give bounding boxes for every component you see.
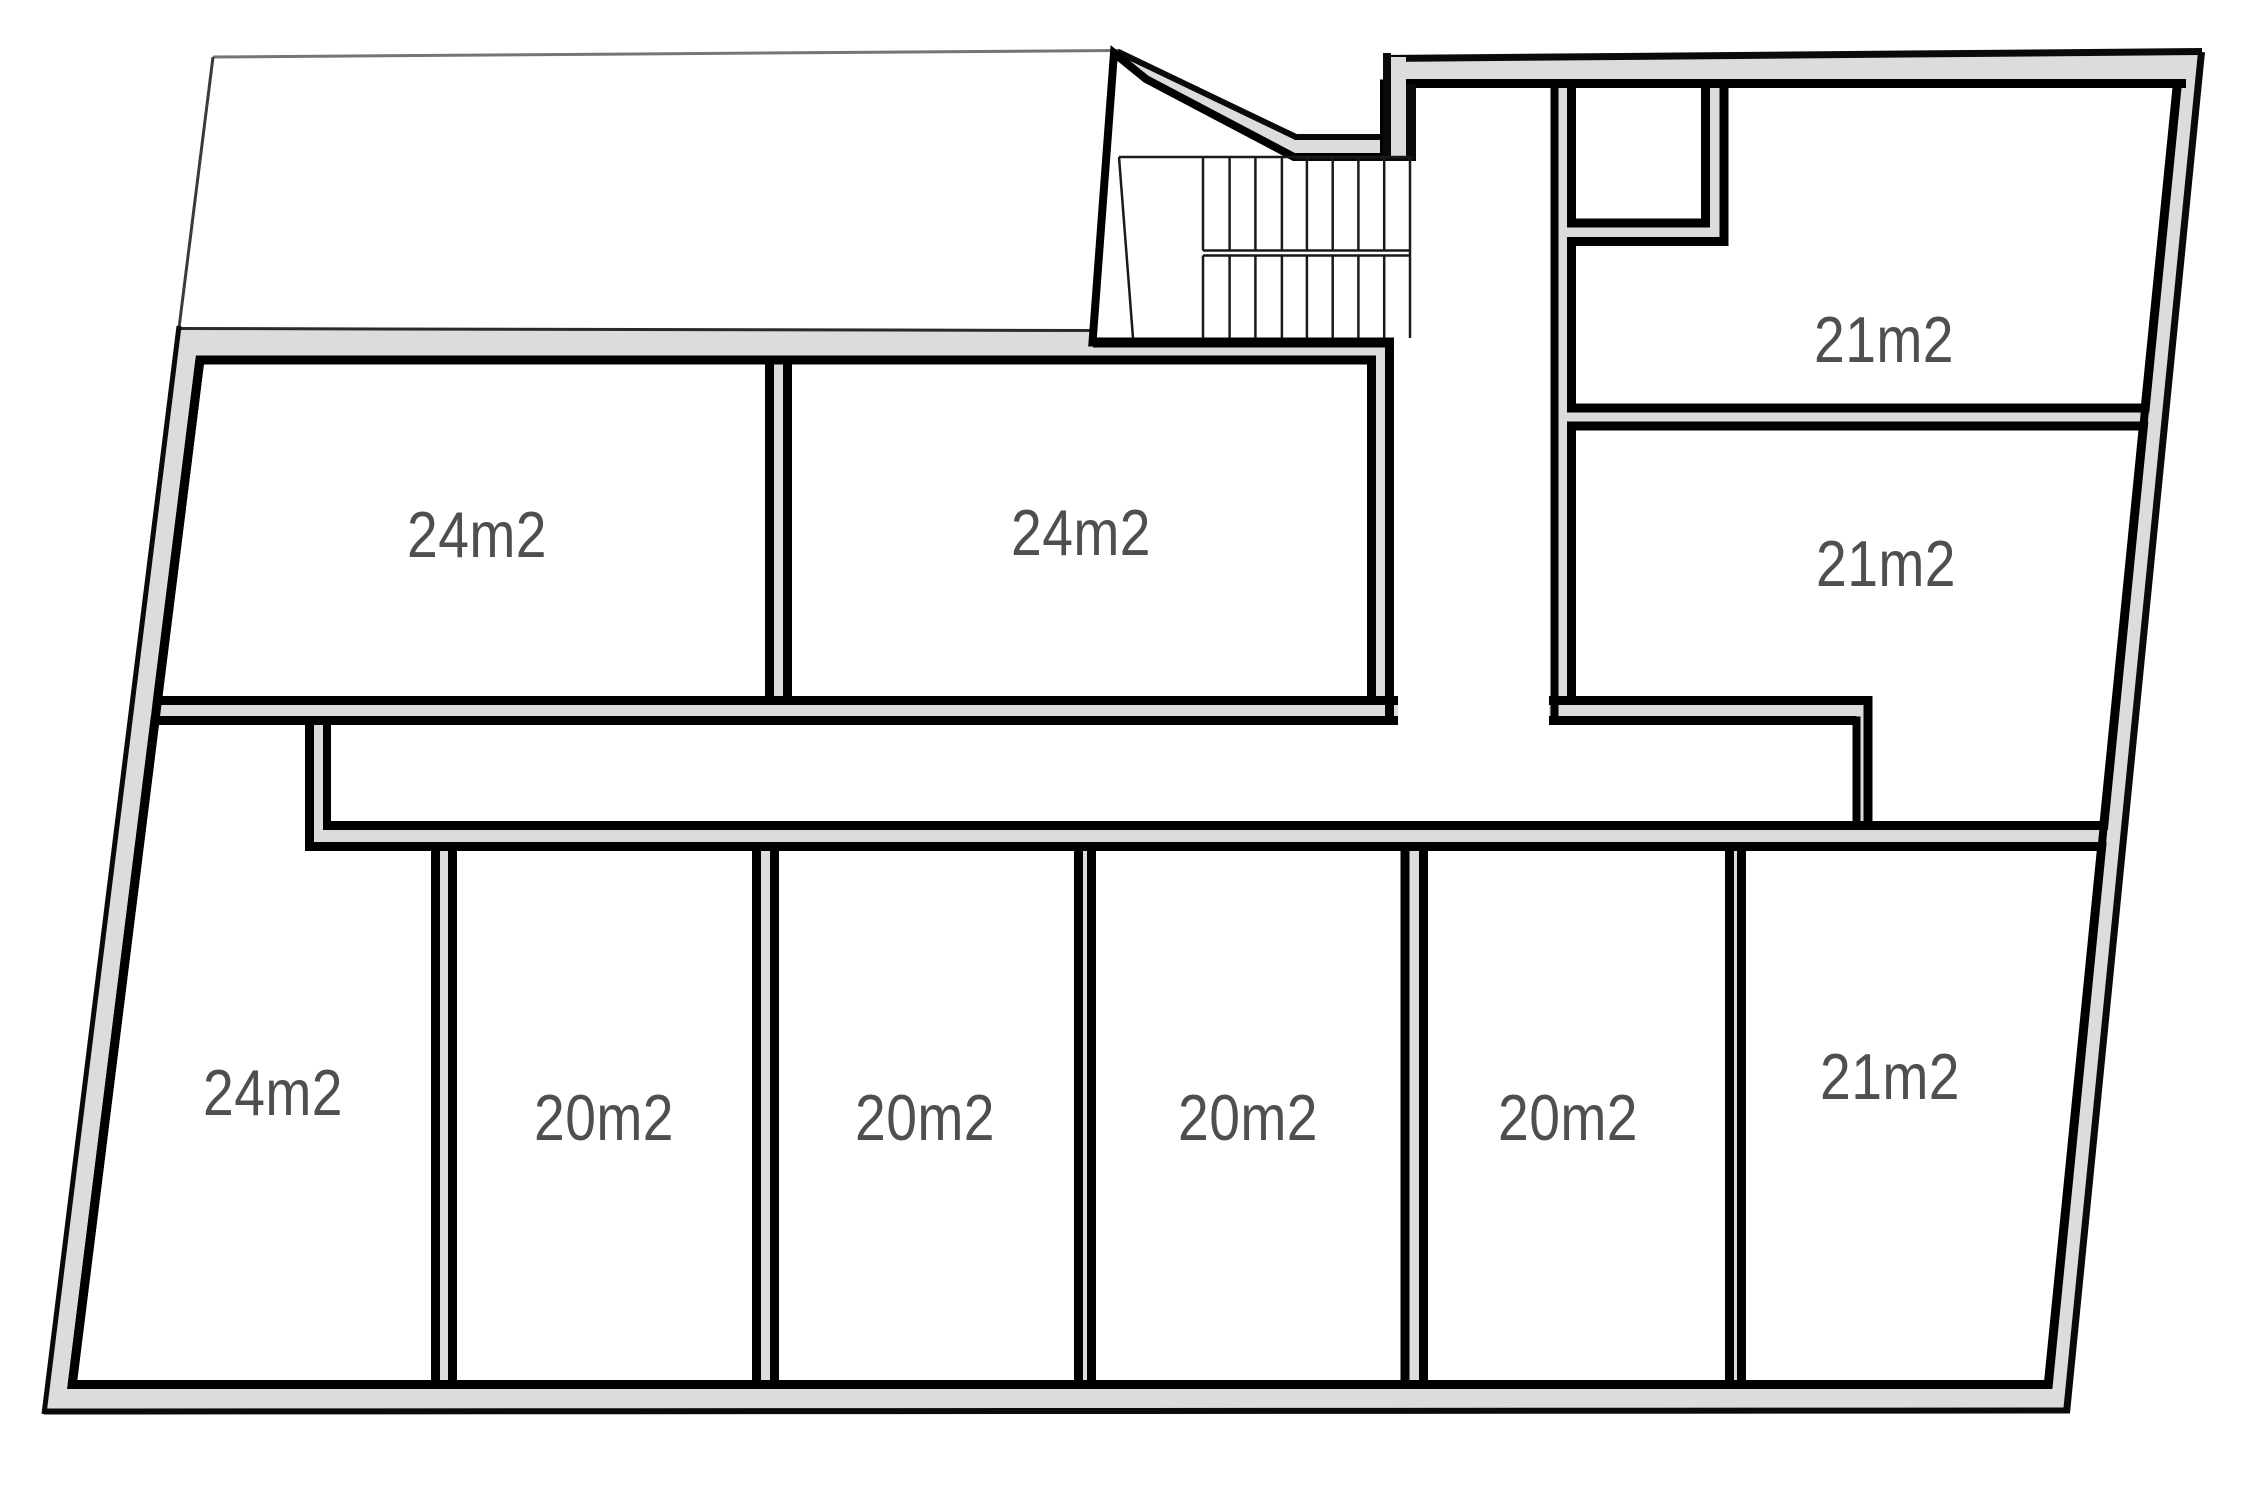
svg-text:21m2: 21m2	[1814, 303, 1954, 376]
svg-text:24m2: 24m2	[1011, 496, 1151, 569]
svg-text:21m2: 21m2	[1816, 527, 1956, 600]
svg-text:24m2: 24m2	[407, 498, 547, 571]
svg-text:21m2: 21m2	[1820, 1040, 1960, 1113]
svg-text:20m2: 20m2	[534, 1081, 674, 1154]
svg-text:20m2: 20m2	[1178, 1081, 1318, 1154]
svg-text:20m2: 20m2	[1498, 1081, 1638, 1154]
svg-text:20m2: 20m2	[855, 1081, 995, 1154]
svg-text:24m2: 24m2	[203, 1056, 343, 1129]
